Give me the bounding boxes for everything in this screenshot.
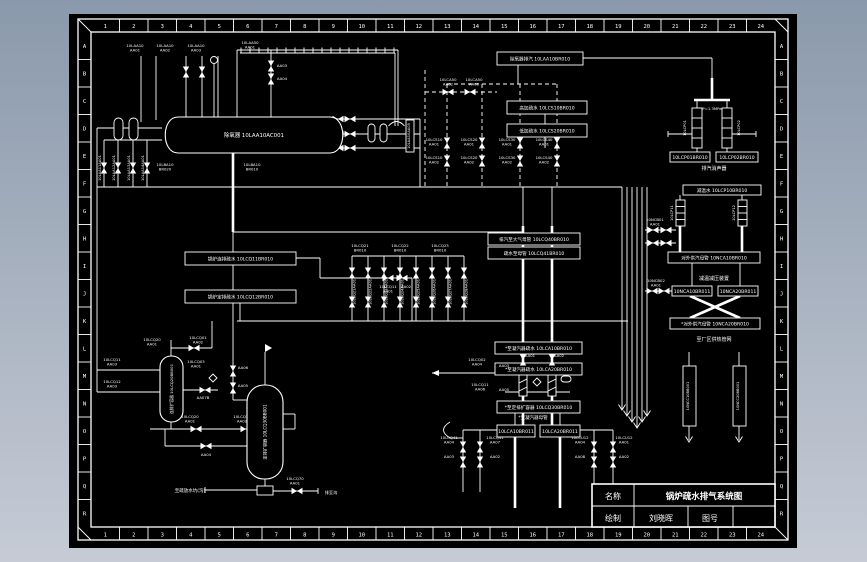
grid-column-label: 16 <box>529 533 536 539</box>
grid-column-label: 3 <box>161 24 164 30</box>
grid-column-label: 22 <box>700 24 707 30</box>
rotated-kks-tag: 10LCQ26AA01 <box>433 279 437 305</box>
pipe-label-text: *至定排扩容器 10LCQ30BR010 <box>505 404 573 411</box>
drawing-title: 锅炉疏水排气系统图 <box>665 491 743 502</box>
grid-row-label: N <box>83 401 86 407</box>
grid-column-label: 12 <box>415 533 422 539</box>
rotated-kks-tag: 10LCQ21AA01 <box>353 279 357 305</box>
grid-row-label: Q <box>83 484 86 490</box>
grid-row-label: G <box>780 209 783 215</box>
pipe-label-text: 排汽至大气母管 10LCQ40BR010 <box>499 236 569 243</box>
grid-column-label: 10 <box>358 24 365 30</box>
periodic-blowdown-tank: 定排扩容器 10LCQ30BB001 <box>247 385 283 479</box>
grid-column-label: 17 <box>558 533 565 539</box>
pipe-label-text: 10LCA10BR011 <box>498 429 534 435</box>
grid-row-label: I <box>780 264 783 270</box>
grid-column-label: 13 <box>444 533 451 539</box>
grid-column-label: 8 <box>303 533 306 539</box>
grid-row-label: G <box>83 209 86 215</box>
kks-tag-label: AA04 <box>277 76 288 81</box>
drawing-number-label: 图号 <box>702 514 718 523</box>
diagram-caption: 至疏放水坑(沟) <box>175 487 206 494</box>
grid-row-label: E <box>83 154 86 160</box>
grid-row-label: Q <box>780 484 783 490</box>
deaerator-label: 除氧器 10LAA10AC001 <box>224 131 284 139</box>
grid-column-label: 24 <box>757 533 764 539</box>
grid-row-label: J <box>83 291 86 297</box>
grid-row-label: D <box>83 126 86 132</box>
diagram-caption: P=1.3MPa <box>702 106 721 111</box>
pipe-label-text: 对外供汽母管 10NCA10BR010 <box>681 254 747 261</box>
diagram-caption: 减温减压装置 <box>699 275 729 282</box>
kks-tag-label: AA03 <box>444 454 455 459</box>
grid-column-label: 3 <box>161 533 164 539</box>
diagram-caption: 排汽消声器 <box>701 165 726 172</box>
pipe-label-text: *至凝汽器疏水 10LCA10BR010 <box>505 345 572 352</box>
grid-column-label: 14 <box>472 24 479 30</box>
grid-row-label: E <box>780 154 783 160</box>
pipe-label-text: *对外供汽母管 10NCA20BR010 <box>681 320 749 327</box>
rotated-kks-tag: 10LCQ22AA01 <box>369 279 373 305</box>
grid-column-label: 23 <box>729 533 736 539</box>
kks-tag-label: AA02 <box>619 454 630 459</box>
grid-column-label: 13 <box>444 24 451 30</box>
grid-row-label: D <box>780 126 783 132</box>
grid-column-label: 7 <box>275 533 278 539</box>
rotated-kks-tag: 10NCC20BB001 <box>736 382 740 411</box>
drawn-label: 绘制 <box>605 513 621 523</box>
rotated-kks-tag: 10LCP01 <box>683 120 687 136</box>
kks-tag-label: AA01 <box>525 353 536 358</box>
rotated-kks-tag: 10LAA13AA01 <box>127 155 131 181</box>
diagram-caption: 至厂区供热管网 <box>696 336 731 343</box>
kks-tag-label: AA03 <box>499 363 510 368</box>
pipe-label-text: 锅炉定排疏水 10LCQ12BR010 <box>208 293 273 300</box>
grid-column-label: 11 <box>387 24 394 30</box>
grid-column-label: 15 <box>501 24 508 30</box>
grid-column-label: 20 <box>643 24 650 30</box>
periodic-blowdown-label: 定排扩容器 10LCQ30BB001 <box>262 404 269 460</box>
kks-tag-label: AA05 <box>238 383 249 388</box>
kks-tag-label: AA07B <box>197 395 210 400</box>
continuous-blowdown-tank: 连排扩容器 10LCQ20BB001 <box>160 356 183 422</box>
grid-column-label: 2 <box>132 533 135 539</box>
grid-row-label: I <box>83 264 86 270</box>
pipe-label-text: 锅炉连排疏水 10LCQ11BR010 <box>208 255 273 262</box>
pipe-label-text: 疏水至母管 10LCQ41BR010 <box>504 250 565 257</box>
rotated-kks-tag: 10LCQ25AA01 <box>417 279 421 305</box>
kks-tag-label: AA03 <box>277 63 288 68</box>
rotated-kks-tag: 10LAA12AA01 <box>112 155 116 181</box>
pipe-label-text: 10LCA20BR011 <box>542 429 578 435</box>
grid-row-label: F <box>83 181 86 187</box>
pipe-label-text: *至凝汽器疏水 10LCA20BR010 <box>505 366 572 373</box>
grid-column-label: 15 <box>501 533 508 539</box>
pipe-label-text: 10NCA10BR011 <box>674 289 711 295</box>
inline-device-symbol <box>561 376 571 382</box>
rotated-kks-tag: 10LAA14AA01 <box>141 155 145 181</box>
title-name-label: 名称 <box>605 491 621 501</box>
pipe-label-text: 高加疏水 10LCS10BR010 <box>519 104 574 111</box>
continuous-blowdown-label: 连排扩容器 10LCQ20BB001 <box>169 363 174 414</box>
small-tank-symbol <box>114 118 123 140</box>
small-tank-symbol <box>368 124 375 142</box>
rotated-kks-tag: 10LCP11 <box>670 205 674 221</box>
grid-row-label: J <box>780 291 783 297</box>
instrument-circle <box>211 57 218 64</box>
kks-tag-label: AA05 <box>499 387 510 392</box>
grid-column-label: 7 <box>275 24 278 30</box>
grid-column-label: 24 <box>757 24 764 30</box>
equipment-symbol <box>257 486 273 495</box>
rotated-kks-tag: 10LCQ27AA01 <box>449 279 453 305</box>
grid-column-label: 10 <box>358 533 365 539</box>
grid-row-label: O <box>83 429 86 435</box>
small-tank-symbol <box>380 124 387 142</box>
grid-column-label: 5 <box>218 533 221 539</box>
grid-column-label: 6 <box>246 24 249 30</box>
cad-viewport: 1122334455667788991010111112121313141415… <box>0 0 867 562</box>
pipe-label-text: 10LCP01BR010 <box>672 155 707 161</box>
grid-row-label: H <box>780 236 783 242</box>
rotated-kks-tag: 10NCC10BB001 <box>686 382 690 411</box>
rotated-kks-tag: 10LCQ24AA01 <box>401 279 405 305</box>
grid-column-label: 21 <box>672 533 679 539</box>
pipe-label-text: 减温水 10LCP10BR010 <box>697 187 748 194</box>
cad-model-space[interactable]: 1122334455667788991010111112121313141415… <box>0 0 867 562</box>
deaerator-vessel: 除氧器 10LAA10AC001 <box>165 117 343 153</box>
pipe-label-text: 10NCA20BR011 <box>720 289 757 295</box>
grid-column-label: 5 <box>218 24 221 30</box>
grid-column-label: 21 <box>672 24 679 30</box>
grid-row-label: C <box>83 99 86 105</box>
grid-row-label: C <box>780 99 783 105</box>
grid-column-label: 9 <box>332 533 335 539</box>
kks-tag-label: AA08 <box>575 454 586 459</box>
rotated-kks-tag: 10LAA10AA05 <box>407 123 411 149</box>
grid-column-label: 20 <box>643 533 650 539</box>
kks-tag-label: AA06 <box>238 365 249 370</box>
grid-column-label: 22 <box>700 533 707 539</box>
drawn-by: 刘晓晖 <box>649 513 673 523</box>
rotated-kks-tag: 10LCQ23AA01 <box>385 279 389 305</box>
rotated-kks-tag: 10LCP12 <box>732 205 736 221</box>
small-tank-symbol <box>129 118 138 140</box>
grid-column-label: 9 <box>332 24 335 30</box>
kks-tag-label: AA02 <box>554 353 565 358</box>
grid-row-label: F <box>780 181 783 187</box>
grid-row-label: H <box>83 236 86 242</box>
grid-column-label: 18 <box>586 24 593 30</box>
rotated-kks-tag: 10LCP02 <box>737 120 741 136</box>
pipe-label-text: 低加疏水 10LCS20BR010 <box>519 127 574 134</box>
rotated-kks-tag: 10LAA11AA01 <box>98 155 102 181</box>
kks-tag-label: AA04 <box>201 452 212 457</box>
rotated-kks-tag: 10LCQ28AA01 <box>465 279 469 305</box>
diagram-caption: 排至沟 <box>325 489 338 496</box>
kks-tag-label: AA02 <box>490 454 501 459</box>
grid-row-label: N <box>780 401 783 407</box>
pipe-label-text: 10LCP02BR010 <box>719 155 754 161</box>
grid-column-label: 17 <box>558 24 565 30</box>
grid-column-label: 2 <box>132 24 135 30</box>
grid-column-label: 23 <box>729 24 736 30</box>
grid-row-label: O <box>780 429 783 435</box>
grid-column-label: 18 <box>586 533 593 539</box>
grid-column-label: 12 <box>415 24 422 30</box>
grid-column-label: 1 <box>104 24 107 30</box>
grid-column-label: 19 <box>615 24 622 30</box>
pipe-label-text: 除氧器排汽 10LAA10BR010 <box>510 55 570 62</box>
grid-column-label: 16 <box>529 24 536 30</box>
grid-column-label: 19 <box>615 533 622 539</box>
title-block: 名称 锅炉疏水排气系统图 绘制 刘晓晖 图号 <box>592 484 775 527</box>
grid-column-label: 1 <box>104 533 107 539</box>
grid-column-label: 6 <box>246 533 249 539</box>
grid-column-label: 14 <box>472 533 479 539</box>
diagram-caption: *至凝汽器母管 <box>518 414 548 421</box>
grid-column-label: 8 <box>303 24 306 30</box>
grid-column-label: 11 <box>387 533 394 539</box>
